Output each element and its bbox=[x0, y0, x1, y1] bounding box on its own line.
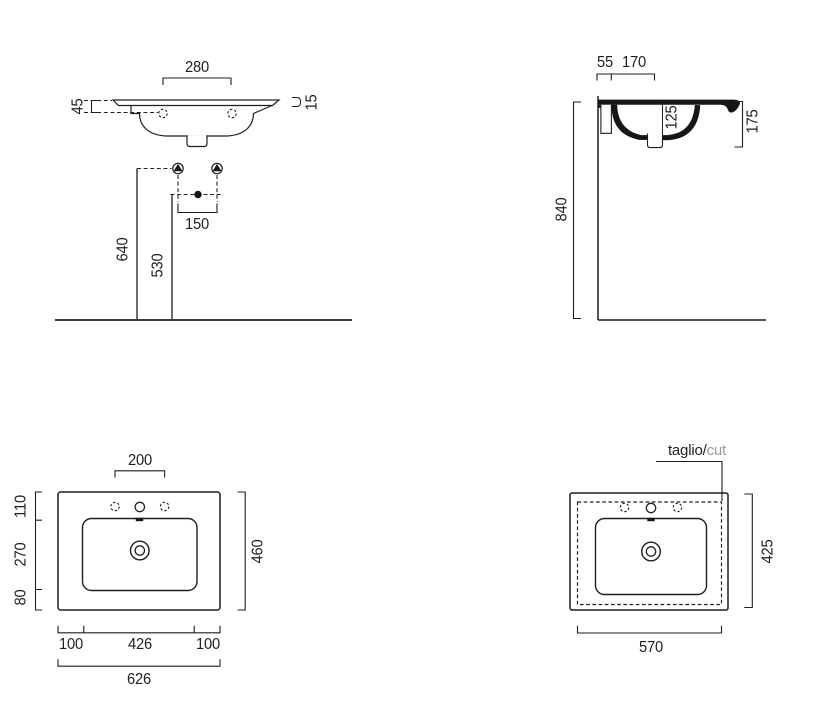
cut-annotation: taglio/cut bbox=[640, 442, 726, 458]
dim-570-bracket bbox=[578, 626, 722, 633]
taglio-leader-line bbox=[656, 462, 722, 502]
drain-inner-ring bbox=[646, 547, 655, 556]
basin-outer-edge bbox=[570, 493, 728, 610]
tap-hole-center bbox=[646, 503, 655, 512]
cutout-plan-view: taglio/cut 425 570 bbox=[0, 0, 819, 711]
overflow-slot bbox=[647, 518, 654, 521]
cut-annotation-english: cut bbox=[707, 443, 726, 458]
cut-line-dashed bbox=[578, 502, 722, 605]
dim-label-425: 425 bbox=[761, 530, 776, 572]
tap-hole-left-dashed bbox=[620, 503, 628, 511]
dim-425-bracket bbox=[744, 494, 752, 608]
cut-annotation-italian: taglio/ bbox=[668, 443, 707, 458]
technical-drawing-sheet: 280 45 15 150 640 530 55 170 125 175 840 bbox=[0, 0, 819, 711]
tap-hole-right-dashed bbox=[673, 503, 681, 511]
drain-outer-ring bbox=[642, 542, 661, 561]
dim-label-570: 570 bbox=[630, 641, 672, 656]
